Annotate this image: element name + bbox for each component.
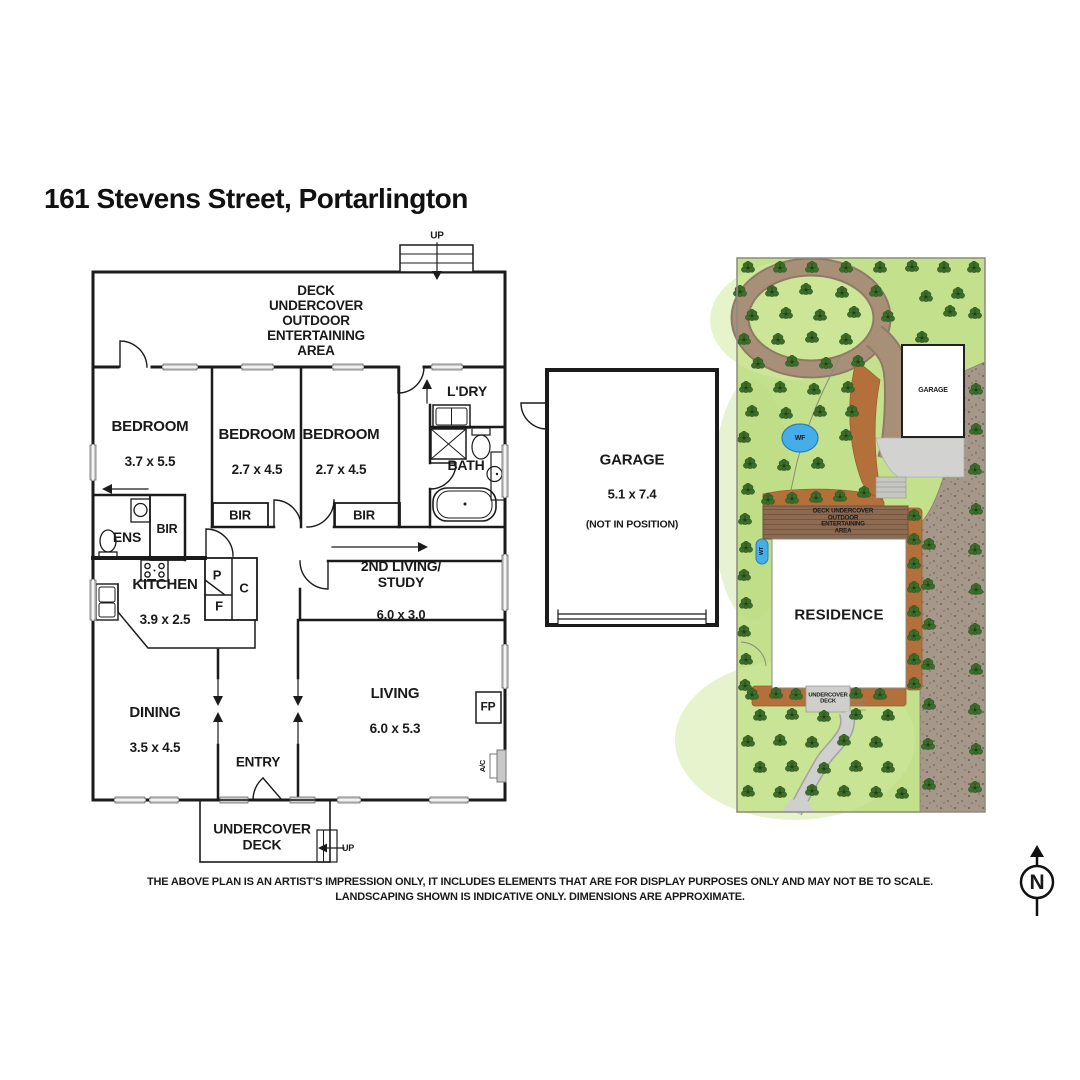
site-steps — [876, 477, 906, 498]
undercover-deck-label: UNDERCOVER DECK — [213, 821, 311, 852]
page-title: 161 Stevens Street, Portarlington — [44, 183, 468, 215]
bir-label-bed1: BIR — [157, 522, 178, 536]
garage-label: GARAGE 5.1 x 7.4 (NOT IN POSITION) — [586, 435, 678, 550]
water-tank-label: WT — [759, 547, 765, 555]
kitchen-label: KITCHEN 3.9 x 2.5 — [132, 559, 197, 645]
dining-label: DINING 3.5 x 4.5 — [129, 687, 180, 773]
water-feature-label: WF — [795, 435, 805, 443]
aircon-unit — [490, 750, 506, 782]
pantry-label: P — [213, 569, 221, 584]
bir-label-bed2: BIR — [229, 509, 251, 524]
laundry-label: L'DRY — [447, 384, 487, 400]
disclaimer-line1: THE ABOVE PLAN IS AN ARTIST'S IMPRESSION… — [0, 876, 1080, 888]
second-living-label: 2ND LIVING/ STUDY 6.0 x 3.0 — [361, 541, 441, 641]
bedroom3-label: BEDROOM 2.7 x 4.5 — [303, 409, 380, 495]
site-deck-label: DECK UNDERCOVER OUTDOOR ENTERTAINING ARE… — [813, 509, 873, 536]
bath-label: BATH — [447, 458, 484, 474]
aircon-label: A/C — [479, 760, 487, 772]
deck-area-label: DECK UNDERCOVER OUTDOOR ENTERTAINING ARE… — [267, 283, 365, 359]
cupboard-label: C — [239, 582, 248, 597]
fridge-label: F — [215, 600, 223, 615]
living-label: LIVING 6.0 x 5.3 — [370, 668, 421, 754]
site-plan — [675, 258, 985, 820]
plan-canvas — [0, 0, 1080, 1080]
top-stairs-up-label: UP — [430, 230, 444, 241]
bedroom1-label: BEDROOM 3.7 x 5.5 — [112, 401, 189, 487]
fireplace-label: FP — [481, 700, 496, 713]
bir-label-bed3: BIR — [353, 509, 375, 524]
floorplan-page: { "page_title": "161 Stevens Street, Por… — [0, 0, 1080, 1080]
disclaimer-line2: LANDSCAPING SHOWN IS INDICATIVE ONLY. DI… — [0, 891, 1080, 903]
ensuite-label: ENS — [113, 530, 141, 546]
bedroom2-label: BEDROOM 2.7 x 4.5 — [219, 409, 296, 495]
bottom-stairs-up-label: UP — [342, 843, 354, 853]
site-garage-label: GARAGE — [918, 387, 948, 395]
site-residence-label: RESIDENCE — [794, 608, 883, 625]
site-undercover-deck-label: UNDERCOVER DECK — [808, 693, 847, 706]
entry-label: ENTRY — [236, 754, 280, 769]
